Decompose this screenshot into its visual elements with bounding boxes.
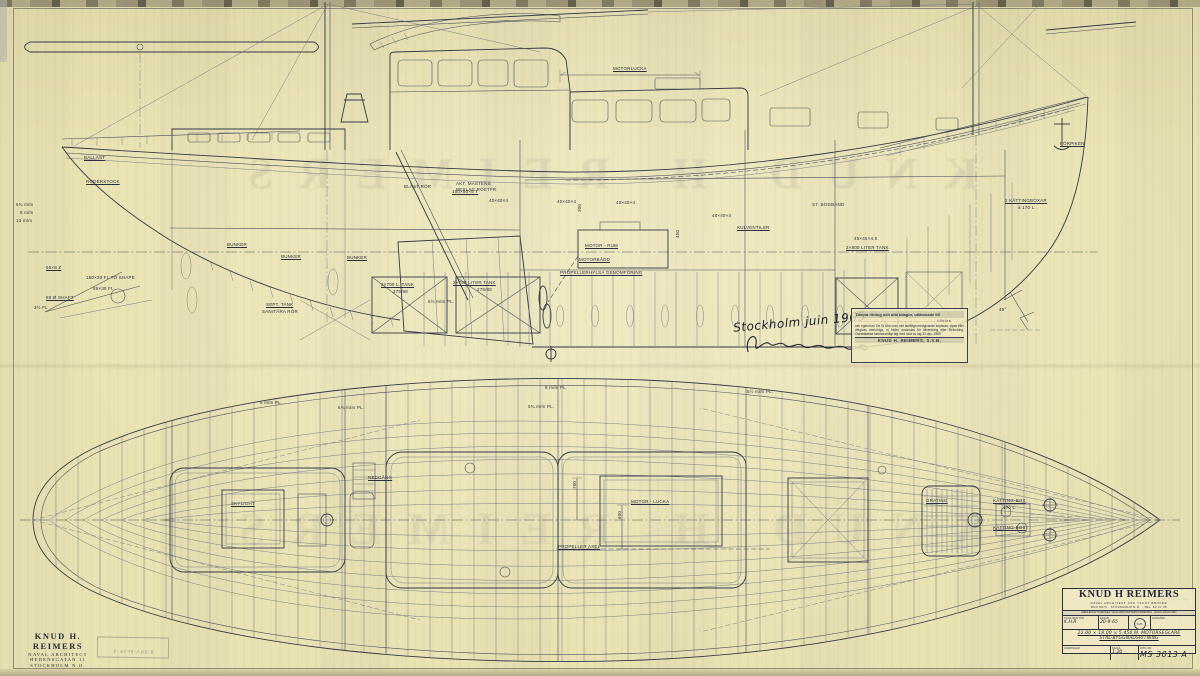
annotation-label: BLÄST RÖR [404,185,431,190]
line [330,307,333,317]
archive-stamp: 8:0RV-0L0F-3 [97,636,169,658]
annotation-label: 6½ m/m PL. [428,300,454,305]
drawing-canvas [0,0,1200,676]
field-label: ÄNDRINGAR [1064,647,1109,650]
annotation-label: SANITÄRA RÖR [262,310,298,315]
field-date: DATUM 20-9-65 [1099,616,1129,629]
drawing-type: STÅL-BYGGNADSRITNING [1063,636,1195,641]
cell-changes: ÄNDRINGAR [1063,646,1111,660]
line [250,281,253,291]
annotation-label: 150×20 FL TO SHAPE [86,276,135,281]
mizzen-boom [25,42,319,52]
planking-seam [49,520,1149,619]
annotation-label: 85×30 FL [93,287,114,292]
field-label: GODKÄND [1152,617,1194,620]
annotation-label: MOTOR - LUCKA [631,500,669,505]
annotation-label: BUNKER [227,243,247,248]
anchor-detail [990,290,1040,330]
main-mast [973,2,979,345]
planking-seam [162,520,1078,536]
spec-rows: 22.00 × 18.00 × 5.450 M. MOTORSEGLARE ST… [1063,630,1195,646]
main-boom [352,4,973,28]
architect-city: STOCKHOLM N.O. [12,663,104,668]
planking-seam [84,446,1127,520]
annotation-label: PROPELLERHYLSA GENOMFÖRING [560,271,642,276]
copyright-header: Denna ritning och alla bilagor, utlämnad… [855,311,964,318]
vessel-spec: 22.00 × 18.00 × 5.450 M. MOTORSEGLARE [1063,631,1195,636]
cell-scale: SKALA 1:20 [1111,646,1139,660]
dimension-line [560,70,700,82]
copyright-footer: KNUD H. REIMERS, S.V.B. [855,337,964,343]
annotation-label: 8 m/m PL. [545,386,567,391]
annotation-label: 2×800 LITER TANK [846,246,889,251]
annotation-label: 2 KÄTTINGBOXAR [1005,199,1047,204]
copyright-body: min egendom. De få icke utan mitt skrift… [855,323,964,336]
annotation-label: 275/88 [393,290,408,295]
line [350,310,353,320]
lightening-hole [181,253,191,279]
architect-title: NAVAL ARCHITECT [12,652,104,657]
annotation-label: 45×45×4.5 [854,237,877,242]
annotation-label: 170 L. [1003,506,1017,511]
copyright-fill-line: ........................................… [855,318,964,323]
annotation-label: 275/88 [477,288,492,293]
annotation-label: RODERSTOCK [86,180,120,185]
funnel [341,94,368,122]
railing [62,97,1086,156]
lightening-hole [697,305,704,327]
annotation-label: 700 [573,481,578,489]
annotation-label: 13 m/m [16,219,32,224]
copyright-notice: Denna ritning och alla bilagor, utlämnad… [851,308,968,363]
signature [747,337,866,352]
line [310,301,313,311]
annotation-label: 8 m/m [20,211,34,216]
annotation-label: FÖRPIKEN [1060,142,1085,147]
annotation-label: MOTORBÄDD [579,258,610,263]
annotation-label: KÄTTING-BOX [993,526,1026,531]
annotation-label: MOTORLUCKA [613,67,647,72]
annotation-label: à 170 L. [1018,206,1036,211]
planking-seam [66,433,1139,520]
annotation-label: 2×750 LITER TANK [453,281,496,286]
annotation-label: SEPT. TANK [266,303,293,308]
stern-profile [62,147,400,320]
annotation-label: 6¾ m/m PL. [338,406,364,411]
annotation-label: AKT. MASTENS [456,182,491,187]
annotation-label: BUNKER [347,256,367,261]
annotation-label: 3½ FL [34,306,48,311]
deck-beams [56,378,1134,662]
annotation-label: MOTOR - RUM [585,244,618,249]
architect-block: KNUD H. REIMERS NAVAL ARCHITECT HEDENSGA… [12,631,104,668]
field-designer: KONSTRUKTÖR K.H.R. [1063,616,1099,629]
vent [878,466,886,474]
planking-seam [49,421,1149,520]
annotation-label: 40×40×4 [616,201,635,206]
annotation-label: 45° [999,308,1006,313]
blueprint-sheet: KNUD H REIMERS KNUD H REIMERS [0,0,1200,676]
field-value: K.H.R. [1064,620,1097,625]
company-address: BOX 5073 · STOCKHOLM N.Ö. · TEL. 63 27 3… [1063,605,1195,609]
title-block: KNUD H REIMERS NAVAL ARCHITECT AND YACHT… [1062,588,1196,654]
annotation-label: 450 [676,230,681,238]
drawing-number: MS 3013 A [1140,650,1194,659]
annotation-label: 2×700 L. TANK [381,283,414,288]
fields-row: KONSTRUKTÖR K.H.R. DATUM 20-9-65 SVB GOD… [1063,616,1195,630]
annotation-label: KÄTTING-BOX [993,499,1026,504]
annotation-label: 40×40×4 [557,200,576,205]
architect-name: KNUD H. REIMERS [12,631,104,651]
field-stamp: SVB [1129,616,1151,629]
svb-stamp: SVB [1134,618,1146,630]
annotation-label: BESLAG ROSTFR. [456,188,498,193]
annotation-label: 40×40×4 [489,199,508,204]
pilothouse [390,48,570,150]
planking-seam [84,520,1127,594]
annotation-label: 5½ m/m PL. [747,390,773,395]
annotation-label: 5¾ m/m [16,203,33,208]
annotation-label: 5 m/m PL. [260,401,282,406]
lightening-hole [592,305,599,327]
lightening-hole [328,269,338,295]
field-approved: GODKÄND [1151,616,1195,629]
line [270,288,273,298]
annotation-label: BALLAST [84,156,105,161]
bottom-row: ÄNDRINGAR SKALA 1:20 RITN. NR. MS 3013 A [1063,646,1195,660]
annotation-label: SKYLIGHT [231,502,255,507]
plan-view [20,378,1180,662]
lightening-hole [187,287,197,313]
annotation-label: 65×8 Z [46,266,61,271]
annotation-label: NEDGÅNG [368,476,392,481]
annotation-label: GRATING [926,499,948,504]
lightening-hole [557,305,564,327]
annotation-label: 300 [578,204,583,212]
annotation-label: PROPELLER AXEL [558,545,600,550]
forward-cabin [570,78,748,150]
lightening-hole [627,305,634,327]
annotation-label: KULVENTILER [737,226,770,231]
annotation-label: 80 Ø SHAFT [46,296,74,301]
annotation-label: 600 [618,511,623,519]
annotation-label: 5¾ m/m PL. [528,405,554,410]
annotation-label: ST. BOGBAND [812,203,844,208]
section-symbol [546,346,556,362]
lightening-hole [662,305,669,327]
field-value: 20-9-65 [1100,620,1127,625]
vent [465,463,475,473]
company-name: KNUD H REIMERS [1063,589,1195,601]
architect-street: HEDENSGATAN 11 [12,657,104,662]
planking-seam [66,520,1139,607]
scale-value: 1:20 [1112,650,1137,655]
annotation-label: 40×40×4 [712,214,731,219]
annotation-label: BUNKER [281,255,301,260]
vent [500,567,510,577]
cell-drawing-number: RITN. NR. MS 3013 A [1139,646,1195,660]
